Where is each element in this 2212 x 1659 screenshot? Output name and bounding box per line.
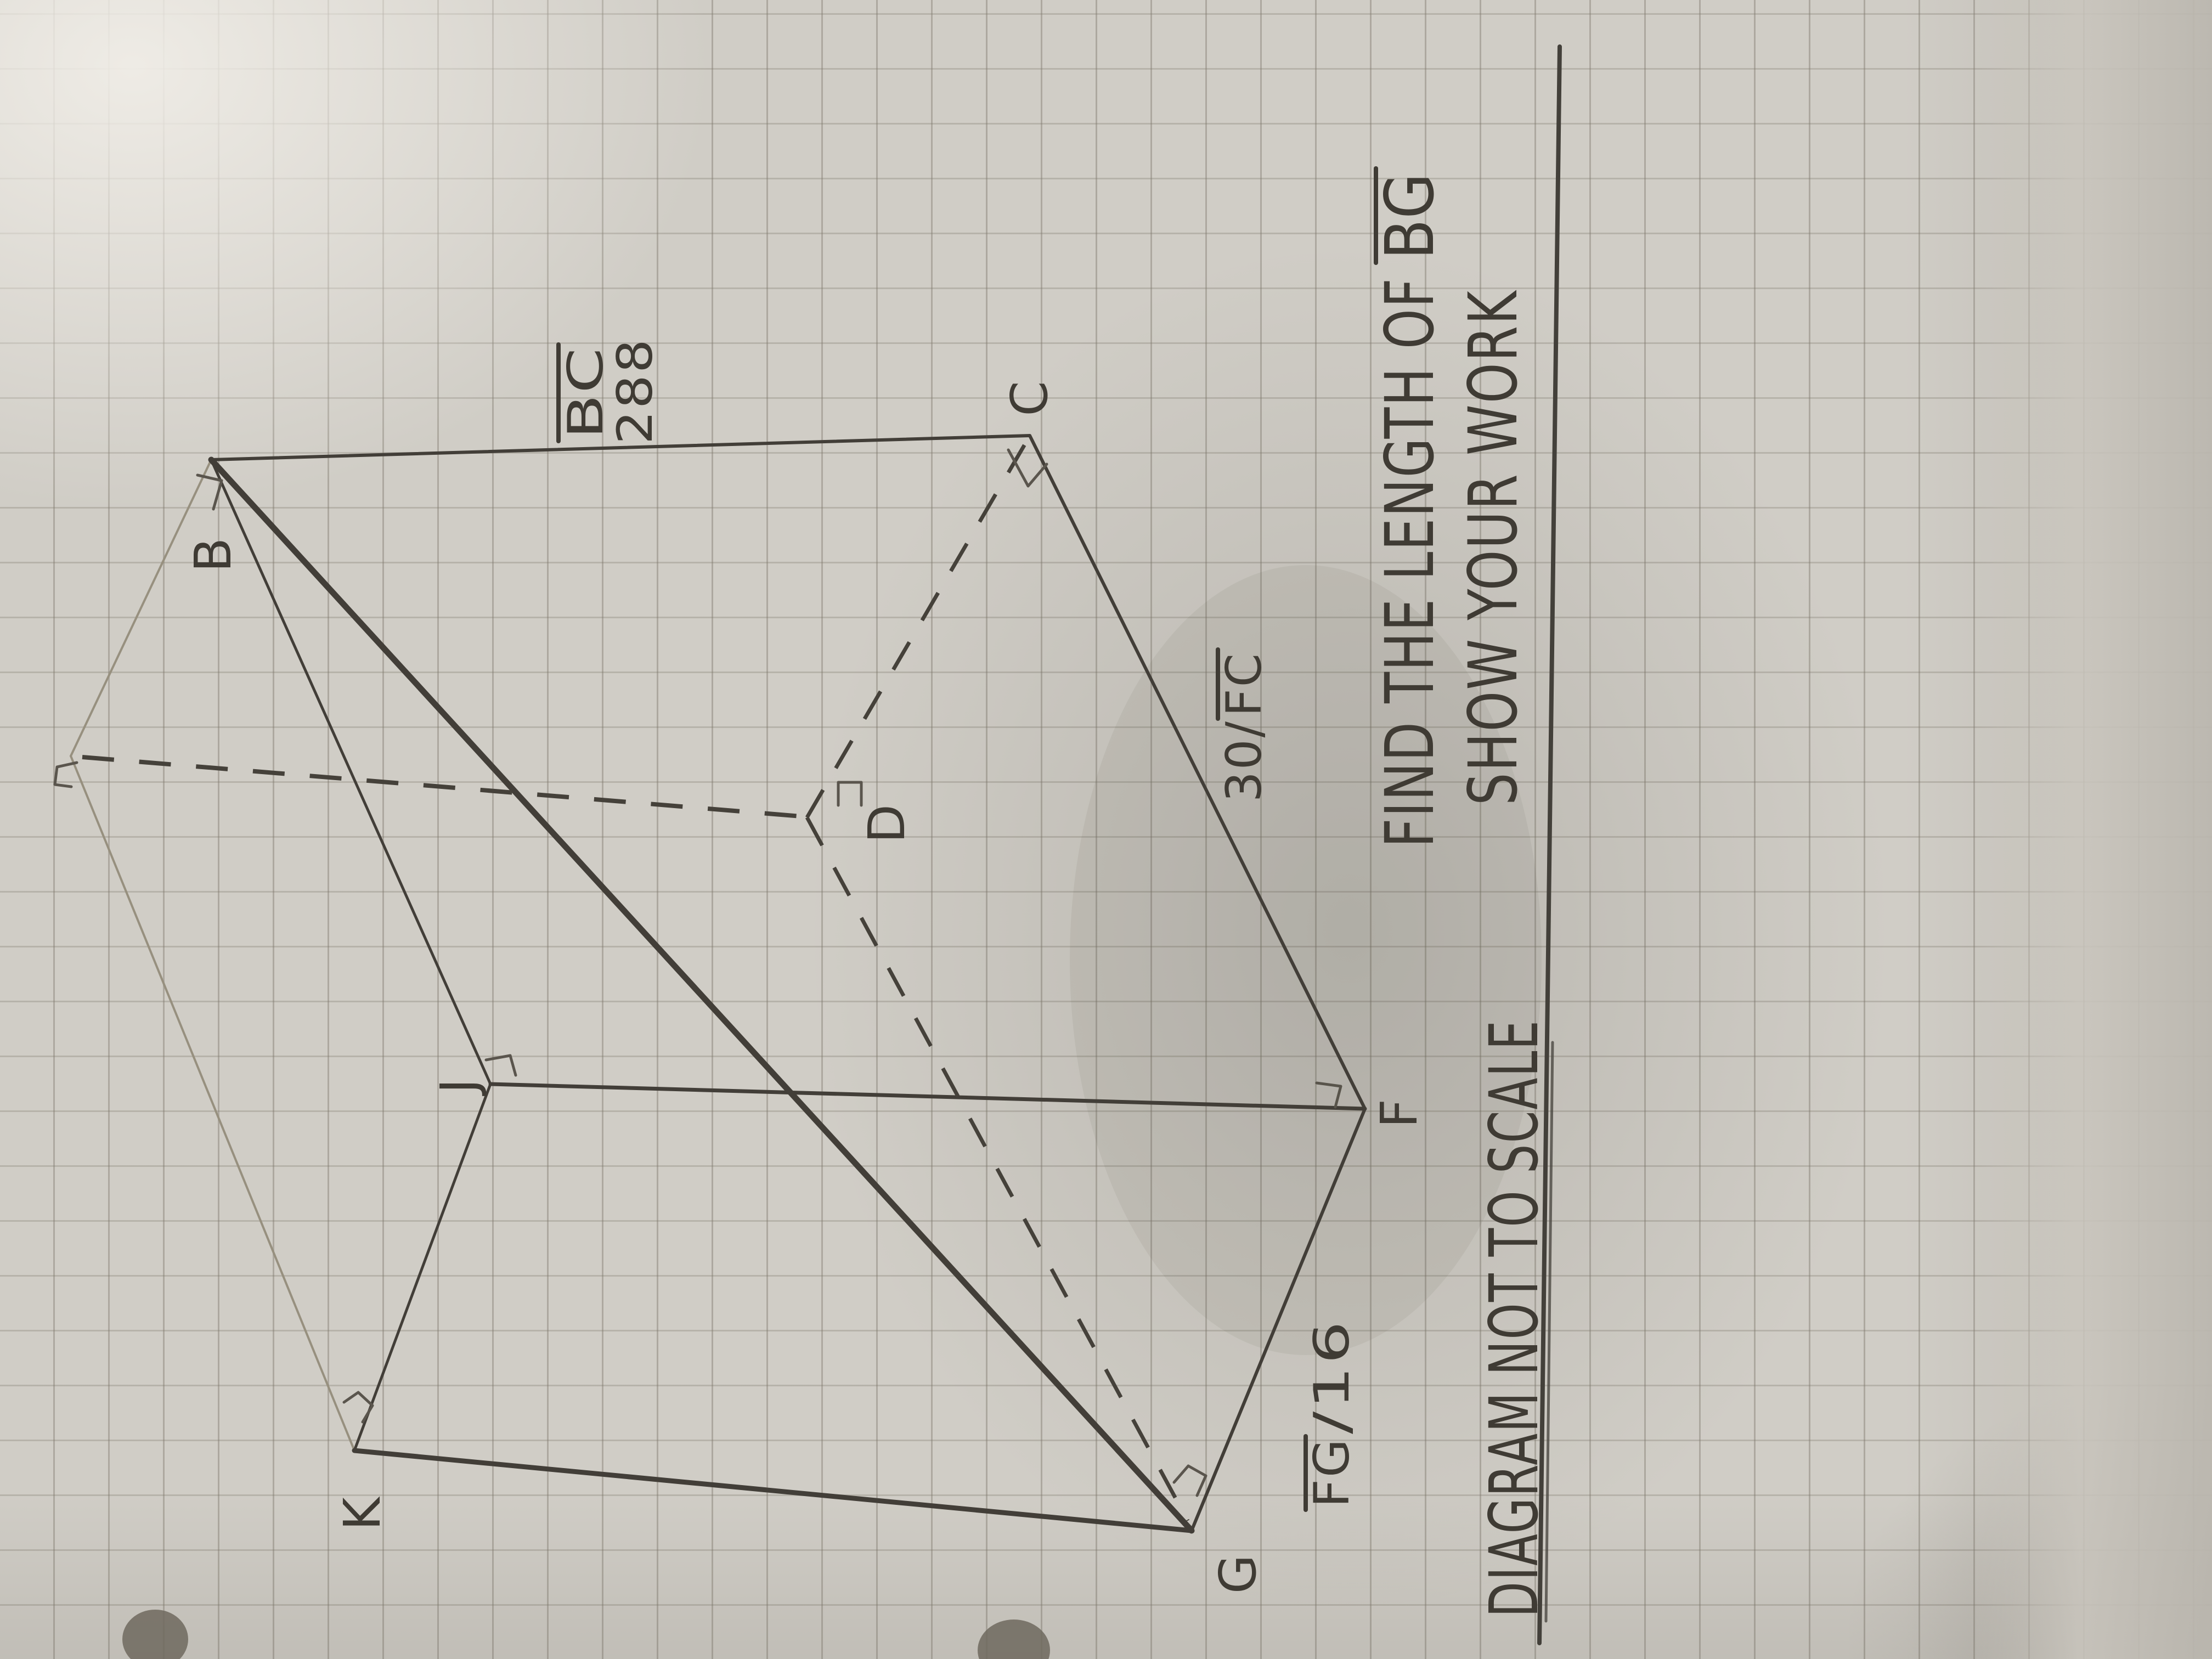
worksheet-drawing: B C D J K F G BC 288 30/ FC FG /16 FIND … bbox=[0, 0, 2212, 1659]
measure-bc: BC bbox=[557, 345, 614, 441]
vertex-label-k: K bbox=[333, 1496, 392, 1530]
vertex-label-j: J bbox=[430, 1077, 488, 1096]
vertex-label-d: D bbox=[857, 803, 916, 843]
right-angle-mark-k bbox=[344, 1392, 373, 1422]
photo-shadow bbox=[1070, 565, 1542, 1355]
edge-backcorner-k bbox=[71, 756, 354, 1451]
edge-k-g bbox=[354, 1451, 1192, 1531]
right-angle-mark-j bbox=[486, 1056, 516, 1075]
vertex-label-b: B bbox=[184, 536, 242, 572]
measure-bc-value-text: 288 bbox=[607, 337, 663, 444]
measure-fg-segment: FG bbox=[1304, 1437, 1360, 1508]
hole-punch-middle bbox=[978, 1620, 1050, 1659]
edge-hidden-backcorner-d bbox=[82, 757, 801, 816]
instruction-find-segment: BG bbox=[1371, 172, 1449, 259]
hole-punch-left bbox=[122, 1610, 188, 1659]
photo-of-worksheet: { "document": { "kind": "handwritten geo… bbox=[0, 0, 2212, 1659]
diagonal-b-g bbox=[211, 460, 1192, 1531]
measure-bc-value: 288 bbox=[607, 337, 663, 444]
measure-bc-segment: BC bbox=[557, 346, 614, 439]
right-angle-mark-backcorner bbox=[55, 763, 77, 787]
right-angle-mark-d bbox=[838, 782, 861, 805]
right-angle-mark-g bbox=[1174, 1466, 1206, 1496]
edge-j-k bbox=[354, 1084, 490, 1451]
edge-b-backcorner bbox=[71, 460, 211, 756]
vertex-label-g: G bbox=[1209, 1553, 1267, 1594]
vertex-label-c: C bbox=[1000, 379, 1059, 416]
edge-hidden-d-c bbox=[807, 444, 1025, 817]
